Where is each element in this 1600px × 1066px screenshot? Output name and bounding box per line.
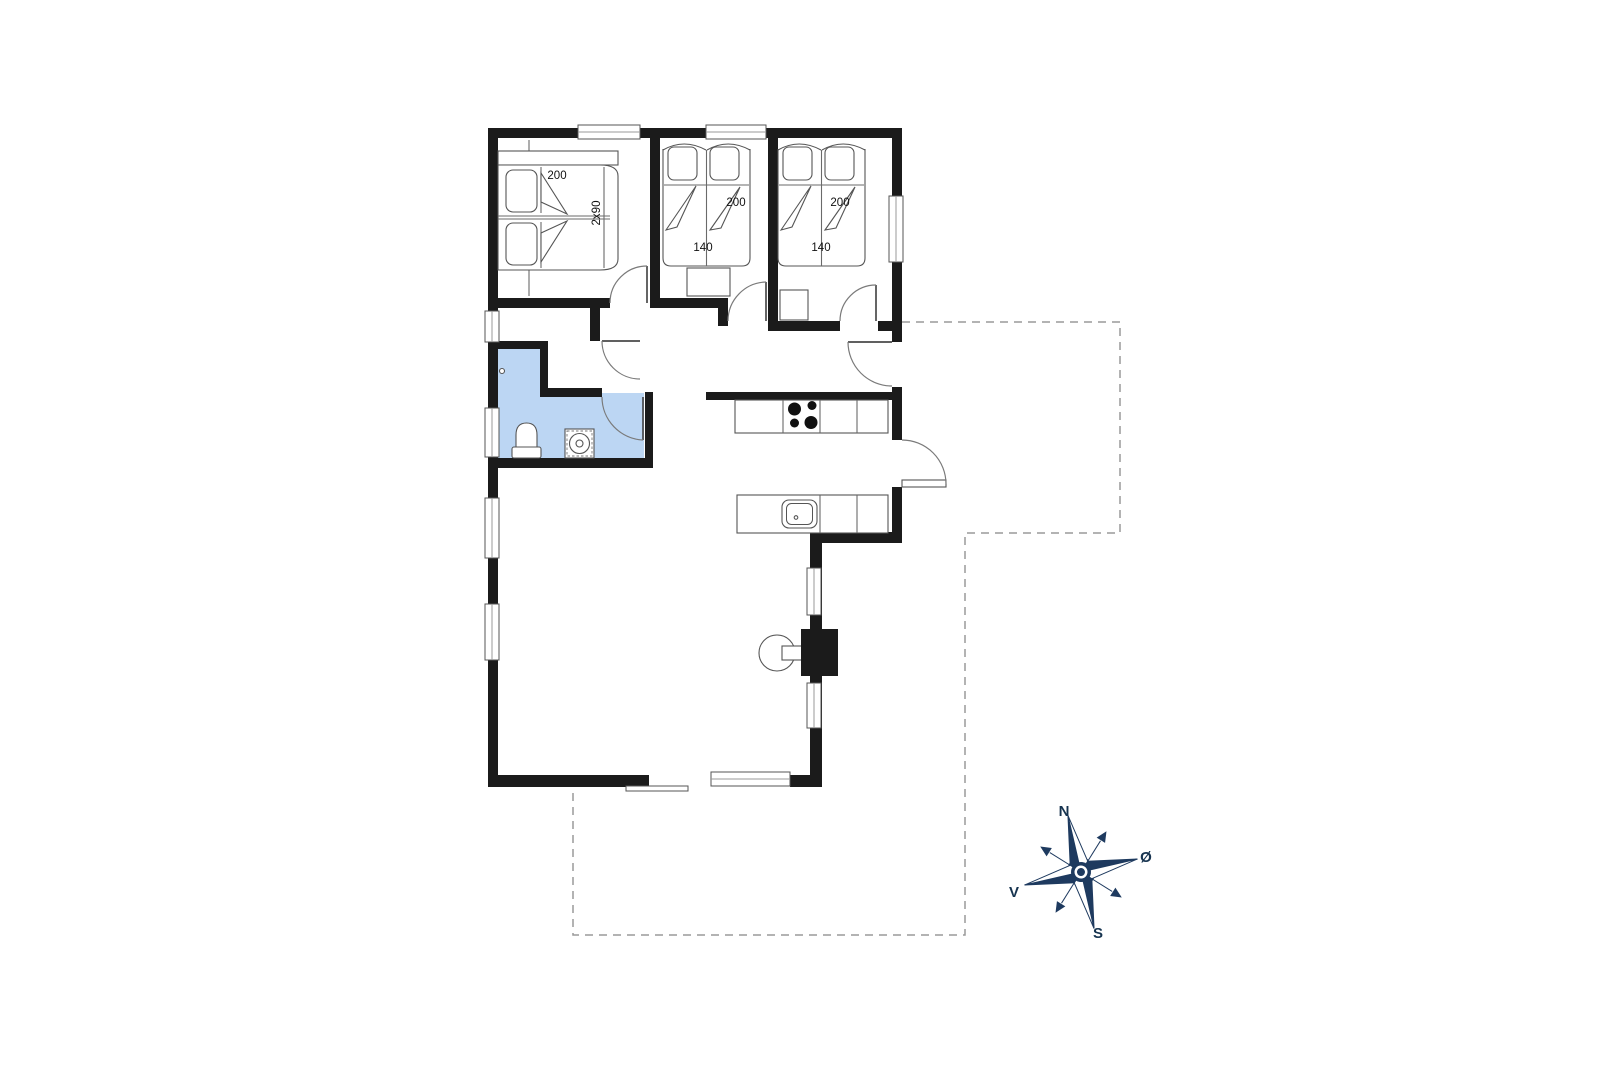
sliding-door: [626, 786, 688, 791]
pillow: [506, 170, 537, 212]
headboard-shelf: [498, 151, 618, 165]
window: [711, 772, 790, 786]
window: [485, 498, 499, 558]
pillow: [506, 223, 537, 265]
window: [706, 125, 766, 139]
bedroom1-furniture: 200 2x90: [498, 140, 618, 296]
pillow: [710, 147, 739, 180]
bed-length-label: 200: [830, 197, 849, 209]
compass-rose-icon: [1011, 802, 1150, 941]
bed-length-label: 200: [726, 197, 745, 209]
window: [807, 568, 821, 615]
stove-pipe: [782, 646, 804, 660]
door-bedroom3: [840, 285, 876, 321]
side-table: [687, 268, 730, 296]
window: [485, 311, 499, 342]
bed-length-label: 200: [547, 170, 566, 182]
bed-width-label: 2x90: [591, 201, 603, 226]
floor-drain-icon: [500, 369, 505, 374]
window: [889, 196, 903, 262]
compass-label-west: V: [1009, 884, 1019, 901]
compass-label-east: Ø: [1140, 849, 1152, 866]
door-hallway: [602, 341, 640, 379]
compass-label-south: S: [1093, 925, 1103, 942]
pillow: [668, 147, 697, 180]
side-table: [780, 290, 808, 320]
kitchen: [735, 400, 888, 533]
window: [485, 604, 499, 660]
window: [807, 683, 821, 728]
pillow: [783, 147, 812, 180]
window: [578, 125, 640, 139]
floor-plan-page: 200 2x90 200 140 200 140: [0, 0, 1600, 1066]
bedroom2-furniture: 200 140: [663, 144, 750, 296]
wood-stove: [759, 629, 838, 676]
kitchen-counter-lower: [737, 495, 888, 533]
chimney-block: [801, 629, 838, 676]
pillow: [825, 147, 854, 180]
sink-icon: [782, 500, 817, 528]
window: [485, 408, 499, 457]
compass-label-north: N: [1059, 803, 1070, 820]
door-entrance: [848, 342, 892, 386]
bed-width-label: 140: [693, 242, 712, 254]
door-bedroom1: [610, 266, 647, 303]
door-terrace-east: [902, 440, 946, 487]
door-bedroom2: [728, 282, 766, 321]
floor-plan-canvas: 200 2x90 200 140 200 140: [0, 0, 1600, 1066]
bed-width-label: 140: [811, 242, 830, 254]
kitchen-counter-upper: [735, 400, 888, 433]
washing-machine-icon: [565, 429, 594, 458]
